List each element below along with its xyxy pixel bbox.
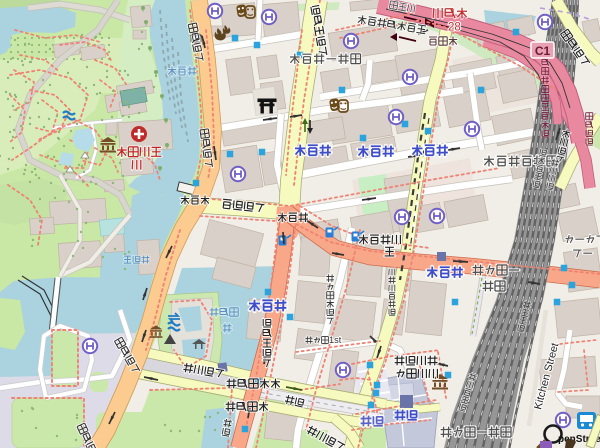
- svg-text:C1: C1: [535, 44, 551, 58]
- svg-text:1st: 1st: [329, 335, 342, 345]
- svg-text:28: 28: [448, 22, 461, 34]
